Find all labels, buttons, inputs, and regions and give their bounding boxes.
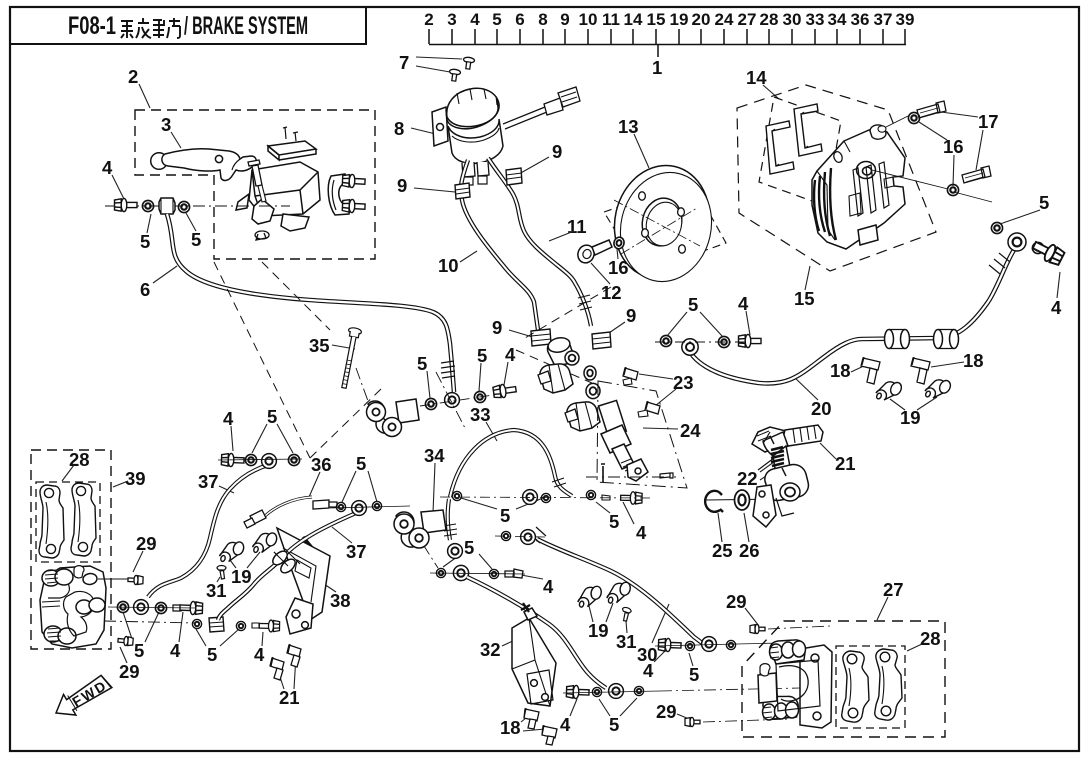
svg-text:5: 5 xyxy=(267,406,277,427)
svg-text:26: 26 xyxy=(739,540,760,561)
svg-text:4: 4 xyxy=(102,157,113,178)
svg-text:17: 17 xyxy=(978,111,999,132)
svg-text:F08-1: F08-1 xyxy=(68,12,116,40)
svg-text:4: 4 xyxy=(170,640,181,661)
svg-text:4: 4 xyxy=(254,644,265,665)
svg-text:5: 5 xyxy=(500,505,510,526)
svg-text:2: 2 xyxy=(424,10,433,29)
svg-text:27: 27 xyxy=(738,10,757,29)
svg-text:3: 3 xyxy=(447,10,456,29)
svg-text:39: 39 xyxy=(125,468,146,489)
svg-text:37: 37 xyxy=(346,541,367,562)
svg-text:19: 19 xyxy=(670,10,689,29)
svg-text:29: 29 xyxy=(119,661,140,682)
svg-text:5: 5 xyxy=(689,664,699,685)
svg-text:5: 5 xyxy=(134,640,144,661)
svg-text:27: 27 xyxy=(883,579,904,600)
svg-text:5: 5 xyxy=(1039,192,1049,213)
svg-text:4: 4 xyxy=(1051,297,1062,318)
svg-text:10: 10 xyxy=(438,255,459,276)
svg-text:19: 19 xyxy=(231,566,252,587)
svg-text:20: 20 xyxy=(811,398,832,419)
svg-text:/ BRAKE SYSTEM: / BRAKE SYSTEM xyxy=(184,12,308,40)
svg-text:9: 9 xyxy=(552,141,562,162)
svg-text:5: 5 xyxy=(356,453,366,474)
svg-text:5: 5 xyxy=(609,714,619,735)
svg-text:10: 10 xyxy=(579,10,598,29)
svg-text:19: 19 xyxy=(588,620,609,641)
svg-text:12: 12 xyxy=(601,282,622,303)
svg-text:20: 20 xyxy=(692,10,711,29)
svg-text:4: 4 xyxy=(223,408,234,429)
svg-text:11: 11 xyxy=(602,10,620,29)
svg-text:13: 13 xyxy=(618,116,639,137)
svg-text:31: 31 xyxy=(616,631,637,652)
svg-text:18: 18 xyxy=(500,717,521,738)
svg-text:5: 5 xyxy=(477,345,487,366)
svg-text:11: 11 xyxy=(567,216,587,237)
svg-text:32: 32 xyxy=(480,639,501,660)
svg-text:24: 24 xyxy=(715,10,734,29)
svg-text:4: 4 xyxy=(505,344,516,365)
svg-text:5: 5 xyxy=(688,294,698,315)
svg-text:8: 8 xyxy=(394,118,404,139)
svg-text:2: 2 xyxy=(128,66,138,87)
svg-text:5: 5 xyxy=(417,353,427,374)
svg-text:14: 14 xyxy=(624,10,643,29)
svg-text:22: 22 xyxy=(737,468,758,489)
svg-text:4: 4 xyxy=(470,10,480,29)
svg-text:15: 15 xyxy=(794,288,815,309)
svg-text:38: 38 xyxy=(330,590,351,611)
svg-text:9: 9 xyxy=(397,175,407,196)
svg-text:4: 4 xyxy=(560,714,571,735)
svg-text:33: 33 xyxy=(806,10,825,29)
svg-text:7: 7 xyxy=(399,52,409,73)
svg-text:5: 5 xyxy=(492,10,501,29)
svg-text:9: 9 xyxy=(492,317,502,338)
svg-text:28: 28 xyxy=(760,10,779,29)
svg-text:34: 34 xyxy=(828,10,847,29)
svg-text:33: 33 xyxy=(470,404,491,425)
svg-text:5: 5 xyxy=(140,231,150,252)
svg-text:30: 30 xyxy=(783,10,802,29)
svg-text:39: 39 xyxy=(896,10,915,29)
svg-text:5: 5 xyxy=(207,644,217,665)
svg-text:5: 5 xyxy=(464,537,474,558)
svg-text:6: 6 xyxy=(140,279,150,300)
svg-text:4: 4 xyxy=(543,576,554,597)
svg-text:37: 37 xyxy=(198,471,219,492)
svg-text:36: 36 xyxy=(311,454,332,475)
svg-text:29: 29 xyxy=(726,591,747,612)
svg-text:25: 25 xyxy=(712,540,733,561)
svg-text:6: 6 xyxy=(515,10,524,29)
svg-text:28: 28 xyxy=(920,628,941,649)
svg-text:31: 31 xyxy=(206,580,227,601)
svg-text:21: 21 xyxy=(835,453,856,474)
svg-text:9: 9 xyxy=(626,305,636,326)
svg-text:23: 23 xyxy=(673,372,694,393)
svg-text:5: 5 xyxy=(609,511,619,532)
svg-text:5: 5 xyxy=(191,229,201,250)
svg-text:37: 37 xyxy=(874,10,893,29)
svg-text:35: 35 xyxy=(309,335,330,356)
svg-text:14: 14 xyxy=(746,67,767,88)
svg-text:4: 4 xyxy=(636,522,647,543)
svg-text:9: 9 xyxy=(560,10,569,29)
svg-text:4: 4 xyxy=(643,660,654,681)
svg-text:1: 1 xyxy=(652,57,662,78)
svg-text:36: 36 xyxy=(851,10,870,29)
svg-text:24: 24 xyxy=(680,420,701,441)
svg-text:18: 18 xyxy=(963,350,984,371)
svg-text:18: 18 xyxy=(830,360,851,381)
svg-text:15: 15 xyxy=(647,10,666,29)
svg-text:21: 21 xyxy=(279,687,300,708)
svg-text:34: 34 xyxy=(424,445,445,466)
svg-text:4: 4 xyxy=(738,293,749,314)
svg-text:8: 8 xyxy=(538,10,547,29)
svg-text:3: 3 xyxy=(161,114,171,135)
svg-text:29: 29 xyxy=(136,533,157,554)
svg-text:29: 29 xyxy=(656,701,677,722)
